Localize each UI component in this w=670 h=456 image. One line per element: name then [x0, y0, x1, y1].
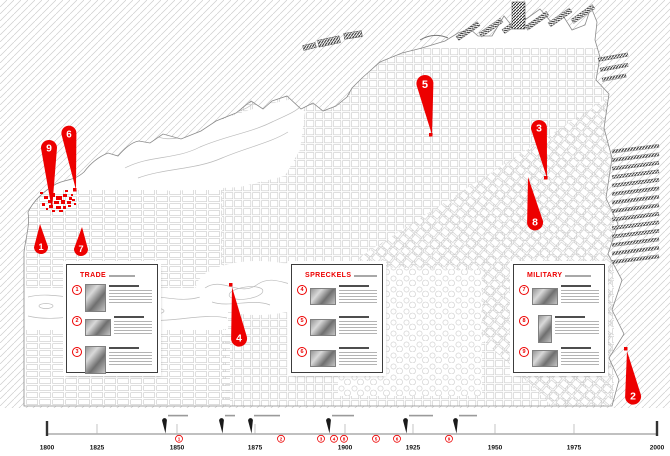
entry-body-text — [109, 352, 152, 366]
timeline-year-label: 1875 — [248, 445, 263, 452]
entry-photo — [310, 319, 336, 336]
entry-text — [109, 346, 152, 373]
panel-military: MILITARY 7 8 9 — [513, 264, 605, 373]
entry-photo — [85, 284, 106, 312]
panel-entry: 2 — [72, 315, 152, 342]
pin-number: 9 — [46, 144, 52, 155]
pin-number: 6 — [66, 129, 72, 140]
entry-number-badge: 3 — [72, 347, 82, 357]
svg-text:3: 3 — [320, 437, 323, 442]
timeline-event-label — [225, 415, 235, 417]
timeline-year-label: 1825 — [90, 445, 105, 452]
entry-number-badge: 4 — [297, 285, 307, 295]
entry-photo — [85, 346, 106, 374]
entry-text — [561, 284, 599, 311]
timeline-number-badge: 4 — [331, 435, 338, 442]
entry-number-badge: 6 — [297, 347, 307, 357]
svg-text:8: 8 — [343, 437, 346, 442]
svg-text:1: 1 — [178, 437, 181, 442]
entry-heading-text — [114, 316, 144, 318]
timeline-year-label: 1925 — [406, 445, 421, 452]
timeline: 1800182518501875190019251950197520001234… — [0, 408, 670, 456]
entry-text — [555, 315, 599, 342]
panel-title: TRADE — [80, 272, 106, 279]
entry-body-text — [339, 321, 377, 335]
pin-target-mark — [229, 283, 233, 287]
panel-title: MILITARY — [527, 272, 562, 279]
pin-number: 5 — [422, 79, 428, 91]
panel-trade: TRADE 1 2 3 — [66, 264, 158, 373]
entry-body-text — [114, 321, 152, 335]
panel-entry: 1 — [72, 284, 152, 311]
entry-heading-text — [555, 316, 585, 318]
svg-text:4: 4 — [333, 437, 336, 442]
entry-body-text — [339, 290, 377, 304]
entry-number-badge: 2 — [72, 316, 82, 326]
entry-heading-text — [561, 285, 591, 287]
panel-title: SPRECKELS — [305, 272, 351, 279]
entry-photo — [538, 315, 552, 343]
entry-photo — [532, 350, 558, 367]
panel-entry: 5 — [297, 315, 377, 342]
map-canvas: 1234567891800182518501875190019251950197… — [0, 0, 670, 456]
entry-text — [339, 284, 377, 311]
timeline-event-label — [409, 415, 433, 417]
panel-subtitle-text — [565, 275, 591, 277]
entry-number-badge: 9 — [519, 347, 529, 357]
entry-heading-text — [339, 316, 369, 318]
timeline-number-badge: 2 — [278, 435, 285, 442]
timeline-year-label: 1950 — [488, 445, 503, 452]
entry-heading-text — [109, 285, 139, 287]
svg-text:5: 5 — [375, 437, 378, 442]
pin-number: 8 — [532, 218, 538, 229]
timeline-number-badge: 3 — [318, 435, 325, 442]
timeline-year-label: 1975 — [567, 445, 582, 452]
entry-photo — [310, 350, 336, 367]
timeline-year-label: 2000 — [650, 445, 665, 452]
timeline-number-badge: 5 — [373, 435, 380, 442]
panel-spreckels: SPRECKELS 4 5 6 — [291, 264, 383, 373]
entry-heading-text — [339, 285, 369, 287]
panel-entry: 8 — [519, 315, 599, 342]
entry-number-badge: 7 — [519, 285, 529, 295]
timeline-year-label: 1850 — [170, 445, 185, 452]
entry-photo — [85, 319, 111, 336]
entry-body-text — [109, 290, 152, 304]
entry-text — [109, 284, 152, 311]
pin-target-mark — [624, 347, 628, 351]
entry-number-badge: 5 — [297, 316, 307, 326]
timeline-year-label: 1800 — [40, 445, 55, 452]
panel-entry: 7 — [519, 284, 599, 311]
timeline-number-badge: 1 — [176, 435, 183, 442]
pin-number: 2 — [630, 392, 636, 403]
timeline-event-label — [168, 415, 188, 417]
entry-heading-text — [561, 347, 591, 349]
entry-photo — [532, 288, 558, 305]
timeline-number-badge: 6 — [394, 435, 401, 442]
pin-number: 3 — [536, 124, 542, 135]
entry-body-text — [561, 290, 599, 304]
panel-entry: 4 — [297, 284, 377, 311]
entry-text — [339, 346, 377, 373]
timeline-event-label — [254, 415, 280, 417]
panel-subtitle-text — [354, 275, 377, 277]
svg-text:9: 9 — [448, 437, 451, 442]
timeline-number-badge: 8 — [341, 435, 348, 442]
svg-text:2: 2 — [280, 437, 283, 442]
panel-header: SPRECKELS — [305, 270, 377, 280]
entry-body-text — [339, 352, 377, 366]
panel-header: TRADE — [80, 270, 152, 280]
pin-number: 7 — [78, 244, 83, 254]
entry-text — [561, 346, 599, 373]
entry-heading-text — [339, 347, 369, 349]
timeline-event-label — [332, 415, 354, 417]
panel-entry: 3 — [72, 346, 152, 373]
panel-entry: 6 — [297, 346, 377, 373]
svg-text:6: 6 — [396, 437, 399, 442]
entry-heading-text — [109, 347, 139, 349]
panel-subtitle-text — [109, 275, 135, 277]
pin-number: 4 — [236, 334, 242, 345]
panel-entry: 9 — [519, 346, 599, 373]
timeline-year-label: 1900 — [338, 445, 353, 452]
pin-number: 1 — [38, 242, 43, 252]
entry-photo — [310, 288, 336, 305]
timeline-end-tick — [656, 421, 658, 436]
panel-header: MILITARY — [527, 270, 599, 280]
timeline-number-badge: 9 — [446, 435, 453, 442]
entry-text — [114, 315, 152, 342]
entry-body-text — [555, 321, 599, 335]
entry-body-text — [561, 352, 599, 366]
entry-number-badge: 1 — [72, 285, 82, 295]
timeline-end-tick — [46, 421, 48, 436]
entry-number-badge: 8 — [519, 316, 529, 326]
timeline-event-label — [459, 415, 477, 417]
entry-text — [339, 315, 377, 342]
